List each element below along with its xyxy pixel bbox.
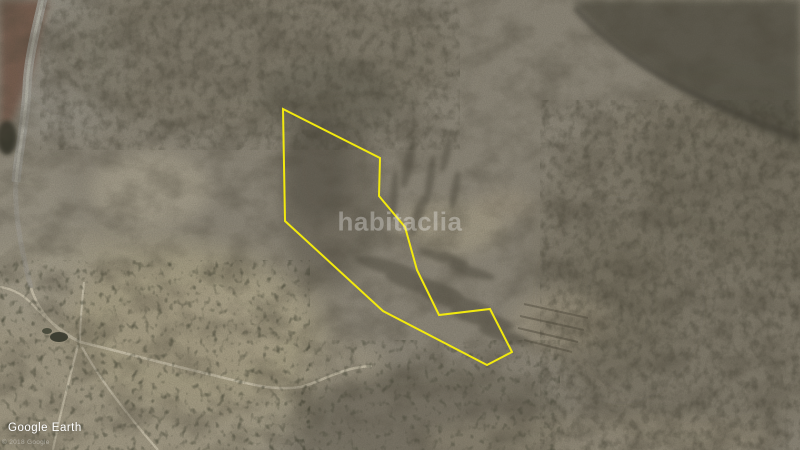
habitaclia-watermark: habitaclia [338, 207, 463, 238]
aerial-map-viewport[interactable]: habitaclia Google Earth © 2018 Google [0, 0, 800, 450]
copyright-text: © 2018 Google [2, 439, 50, 446]
google-earth-logo: Google Earth [8, 422, 82, 434]
